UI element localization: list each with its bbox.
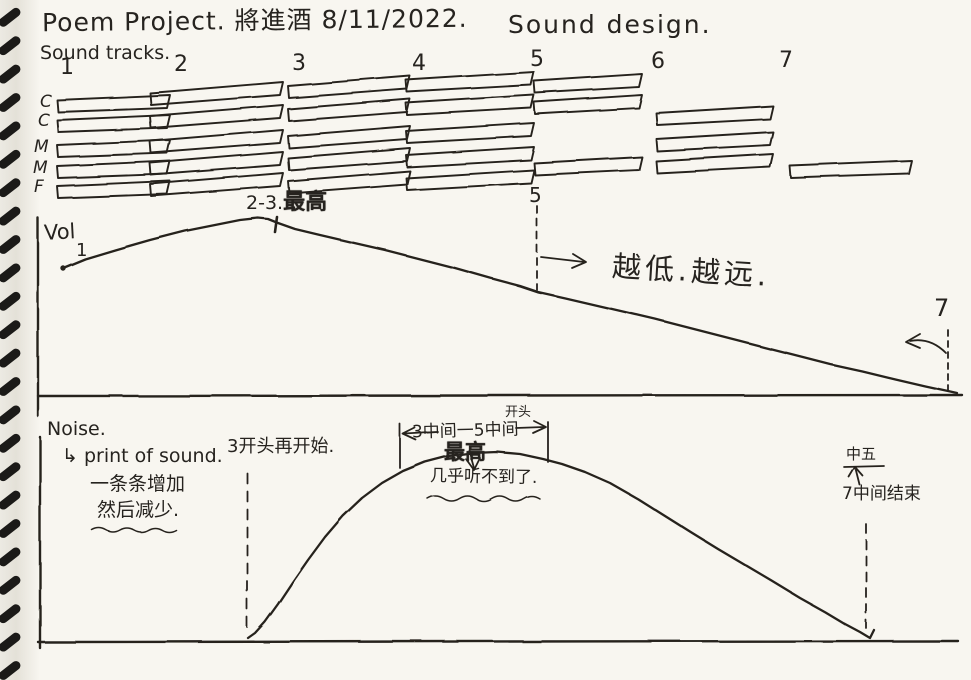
track-bar [57,115,170,132]
spiral-coil-icon [0,91,22,113]
noise-peak-note: 最高 [444,441,486,463]
track-bar [534,95,642,114]
volume-curve [63,218,957,393]
track-number-4: 4 [412,52,426,75]
noise-x-axis [38,641,958,642]
vol-axis-label: Vol [43,220,76,244]
page-title: Poem Project. 將進酒 8/11/2022. [42,6,468,37]
spiral-coil-icon [0,375,22,397]
spiral-coil-icon [0,347,22,369]
range-right-arrow-shaft [516,427,544,428]
notebook-page: Poem Project. 將進酒 8/11/2022. Sound desig… [0,0,971,680]
track-bar [534,157,642,175]
spiral-coil-icon [0,205,22,227]
end-note: 7中间结束 [842,486,921,504]
spiral-coil-icon [0,404,22,426]
track-bar [790,161,912,178]
spiral-coil-icon [0,34,22,56]
spiral-coil-icon [0,176,22,198]
row-label-f: F [34,179,44,197]
spiral-coil-icon [0,148,22,170]
range-superscript: 开头 [505,406,531,420]
spiral-coil-icon [0,602,22,624]
track-number-6: 6 [651,50,665,73]
track-bar [656,154,773,173]
track-bar [406,123,534,143]
vol-start-label: 1 [76,242,87,261]
marker5-label: 5 [529,185,542,206]
spiral-coil-icon [0,233,22,255]
spiral-coil-icon [0,290,22,312]
page-title-right: Sound design. [508,12,712,38]
spiral-coil-icon [0,546,22,568]
spiral-coil-icon [0,120,22,142]
inaudible-underline [428,497,540,502]
noise-line1: ↳ print of sound. [62,447,223,467]
end-label: 中五 [846,447,876,463]
end-label-underline [844,466,884,467]
restart-note: 3开头再开始. [227,438,334,457]
spiral-coil-icon [0,489,22,511]
spiral-coil-icon [0,262,22,284]
row-label-c2: C [38,113,50,131]
spiral-binding [0,6,22,680]
track-bar [656,106,773,125]
track-bars-grid [57,72,912,198]
track-number-5: 5 [530,48,544,71]
track-number-7: 7 [779,49,793,72]
track-bar [288,126,410,148]
row-label-m1: M [34,139,49,157]
spiral-coil-icon [0,631,22,653]
peak-prefix: 2-3. [246,192,283,214]
track-number-2: 2 [174,53,188,76]
reduce-underline [92,528,176,532]
row-label-c1: C [40,94,52,112]
peak-tick [275,217,277,232]
spiral-coil-icon [0,432,22,454]
spiral-coil-icon [0,460,22,482]
noise-heading: Noise. [47,420,106,440]
track-bar [288,76,410,98]
track-bar [150,82,283,105]
spiral-coil-icon [0,6,22,28]
track-number-1: 1 [60,56,74,79]
spiral-coil-icon [0,318,22,340]
track-number-3: 3 [292,52,306,75]
track-bar [288,99,410,121]
track-bar [406,95,534,115]
track-bar [57,140,170,157]
spiral-coil-icon [0,659,22,680]
track-bar [57,95,170,112]
noise-curve [248,452,874,638]
spiral-coil-icon [0,574,22,596]
sketch-canvas [0,0,971,680]
track-bar [534,74,642,93]
row-label-m2: M [33,160,48,178]
track-bar [656,132,773,151]
spiral-coil-icon [0,517,22,539]
spiral-coil-icon [0,63,22,85]
section-divider-baseline [38,395,962,396]
peak-annotation: 2-3.最高 [246,191,327,214]
track-bar [406,170,534,190]
track-bar [406,147,534,167]
inaudible-note: 几乎听不到了. [430,468,538,488]
noise-line2: 一条条增加 [90,475,185,495]
track-bar [288,148,410,170]
peak-word: 最高 [283,190,327,215]
noise-line3: 然后减少. [97,501,179,521]
marker7-label: 7 [934,296,949,321]
